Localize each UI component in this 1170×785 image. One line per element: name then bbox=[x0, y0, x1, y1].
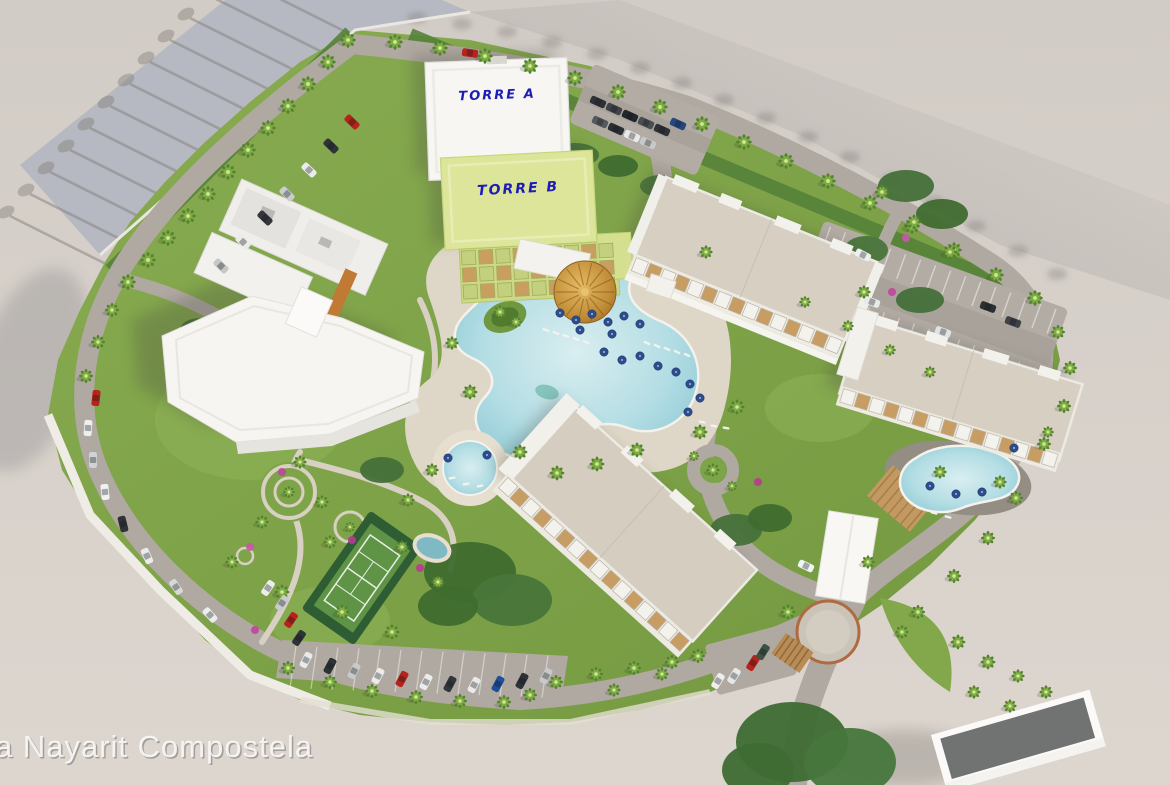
palm-tree-icon bbox=[550, 466, 565, 481]
palm-tree-icon bbox=[385, 625, 400, 640]
palm-tree-icon bbox=[1042, 426, 1054, 438]
palm-tree-icon bbox=[323, 675, 337, 689]
terrace-cell bbox=[480, 283, 495, 298]
palm-frond-shadow bbox=[587, 48, 607, 60]
umbrella-top bbox=[486, 454, 488, 456]
bougainvillea-bush bbox=[902, 234, 910, 242]
palm-tree-icon bbox=[323, 535, 337, 549]
palm-tree-icon bbox=[1037, 437, 1051, 451]
palm-tree-icon bbox=[140, 252, 156, 268]
palm-tree-icon bbox=[255, 515, 269, 529]
palm-tree-icon bbox=[981, 531, 995, 545]
tree-cluster bbox=[598, 155, 638, 177]
tree-cluster bbox=[418, 586, 478, 626]
umbrella-top bbox=[687, 411, 689, 413]
palm-tree-icon bbox=[220, 164, 236, 180]
palm-tree-icon bbox=[365, 684, 379, 698]
terrace-cell bbox=[599, 243, 614, 258]
palm-tree-icon bbox=[895, 625, 909, 639]
umbrella-top bbox=[575, 319, 577, 321]
car-cabin bbox=[467, 49, 474, 56]
terrace-cell bbox=[497, 283, 512, 298]
site-plan-canvas: TORRE A TORRE B bbox=[0, 0, 1170, 785]
palm-tree-icon bbox=[993, 475, 1007, 489]
terrace-cell bbox=[497, 266, 512, 281]
palm-tree-icon bbox=[283, 486, 295, 498]
palm-frond-shadow bbox=[798, 131, 818, 143]
palm-tree-icon bbox=[293, 455, 307, 469]
palm-frond-shadow bbox=[542, 36, 562, 48]
palm-frond-shadow bbox=[452, 18, 472, 30]
palm-tree-icon bbox=[781, 605, 796, 620]
bougainvillea-bush bbox=[251, 626, 259, 634]
umbrella-top bbox=[591, 313, 593, 315]
palm-tree-icon bbox=[911, 605, 925, 619]
umbrella-top bbox=[639, 323, 641, 325]
palm-tree-icon bbox=[387, 34, 403, 50]
palm-tree-icon bbox=[315, 495, 329, 509]
palm-tree-icon bbox=[981, 655, 996, 670]
palm-tree-icon bbox=[799, 296, 811, 308]
palm-tree-icon bbox=[820, 173, 836, 189]
palm-tree-icon bbox=[842, 320, 854, 332]
terrace-cell bbox=[463, 284, 478, 299]
umbrella-top bbox=[559, 312, 561, 314]
palm-frond-shadow bbox=[1008, 245, 1028, 257]
palm-frond-shadow bbox=[840, 151, 860, 163]
palm-tree-icon bbox=[409, 690, 423, 704]
palm-tree-icon bbox=[432, 40, 448, 56]
car bbox=[89, 452, 97, 468]
palm-tree-icon bbox=[691, 649, 705, 663]
palm-tree-icon bbox=[567, 70, 583, 86]
palm-frond-shadow bbox=[756, 112, 776, 124]
umbrella-top bbox=[579, 329, 581, 331]
palm-tree-icon bbox=[699, 245, 713, 259]
palm-tree-icon bbox=[884, 344, 896, 356]
palm-tree-icon bbox=[1009, 491, 1023, 505]
palm-tree-icon bbox=[225, 555, 239, 569]
umbrella-top bbox=[699, 397, 701, 399]
palm-tree-icon bbox=[933, 465, 947, 479]
palm-tree-icon bbox=[943, 245, 958, 260]
palm-tree-icon bbox=[694, 116, 710, 132]
palm-tree-icon bbox=[522, 58, 538, 74]
bougainvillea-bush bbox=[888, 288, 896, 296]
terrace-cell bbox=[496, 249, 511, 264]
palm-frond-shadow bbox=[714, 94, 734, 106]
palm-tree-icon bbox=[875, 185, 890, 200]
palm-tree-icon bbox=[180, 208, 196, 224]
car bbox=[100, 484, 110, 501]
palm-tree-icon bbox=[861, 555, 875, 569]
palm-tree-icon bbox=[778, 153, 794, 169]
palm-tree-icon bbox=[340, 32, 356, 48]
palm-frond-shadow bbox=[966, 220, 986, 232]
palm-tree-icon bbox=[947, 569, 961, 583]
car bbox=[91, 390, 101, 407]
palm-tree-icon bbox=[924, 366, 936, 378]
palm-tree-icon bbox=[335, 605, 350, 620]
terrace-cell bbox=[462, 267, 477, 282]
bougainvillea-bush bbox=[348, 536, 356, 544]
terrace-cell bbox=[478, 249, 493, 264]
palm-tree-icon bbox=[91, 335, 105, 349]
umbrella-top bbox=[675, 371, 677, 373]
car bbox=[83, 420, 92, 437]
terrace-cell bbox=[479, 266, 494, 281]
palm-tree-icon bbox=[463, 385, 478, 400]
palm-tree-icon bbox=[260, 120, 276, 136]
palm-frond-shadow bbox=[1047, 268, 1067, 280]
umbrella-top bbox=[1013, 447, 1015, 449]
palm-tree-icon bbox=[105, 303, 119, 317]
umbrella-top bbox=[639, 355, 641, 357]
palm-tree-icon bbox=[79, 369, 93, 383]
palm-tree-icon bbox=[607, 683, 621, 697]
palm-tree-icon bbox=[445, 336, 459, 350]
palm-tree-icon bbox=[967, 685, 981, 699]
umbrella-top bbox=[611, 333, 613, 335]
palm-tree-icon bbox=[431, 575, 445, 589]
palm-tree-icon bbox=[240, 142, 256, 158]
palm-tree-icon bbox=[727, 481, 738, 492]
terrace-cell bbox=[461, 250, 476, 265]
palm-tree-icon bbox=[706, 463, 720, 477]
palm-tree-icon bbox=[523, 688, 537, 702]
palm-tree-icon bbox=[665, 655, 679, 669]
palm-tree-icon bbox=[200, 186, 216, 202]
palm-tree-icon bbox=[345, 522, 356, 533]
torre-a-label: TORRE A bbox=[458, 87, 536, 105]
umbrella-top bbox=[657, 365, 659, 367]
palm-tree-icon bbox=[320, 54, 336, 70]
tree-cluster bbox=[916, 199, 968, 229]
umbrella-top bbox=[603, 351, 605, 353]
palm-tree-icon bbox=[549, 675, 563, 689]
palm-tree-icon bbox=[497, 695, 511, 709]
terrace-cell bbox=[532, 281, 547, 296]
palm-tree-icon bbox=[988, 267, 1004, 283]
car-cabin bbox=[93, 395, 100, 402]
palm-tree-icon bbox=[627, 661, 641, 675]
palm-tree-icon bbox=[730, 400, 745, 415]
umbrella-top bbox=[981, 491, 983, 493]
palm-tree-icon bbox=[655, 667, 669, 681]
palm-tree-icon bbox=[1003, 699, 1017, 713]
palm-tree-icon bbox=[1057, 399, 1071, 413]
umbrella-top bbox=[955, 493, 957, 495]
car-cabin bbox=[90, 457, 96, 463]
tree-cluster bbox=[360, 457, 404, 483]
palm-frond-shadow bbox=[497, 26, 517, 38]
palm-tree-icon bbox=[1051, 325, 1065, 339]
palm-tree-icon bbox=[736, 134, 752, 150]
bougainvillea-bush bbox=[246, 543, 254, 551]
palm-tree-icon bbox=[425, 463, 439, 477]
palm-frond-shadow bbox=[672, 77, 692, 89]
palm-tree-icon bbox=[610, 84, 626, 100]
car-cabin bbox=[85, 425, 92, 431]
palm-tree-icon bbox=[590, 457, 605, 472]
palm-tree-icon bbox=[493, 305, 507, 319]
bougainvillea-bush bbox=[278, 468, 286, 476]
tree-cluster bbox=[896, 287, 944, 313]
umbrella-top bbox=[607, 321, 609, 323]
palm-tree-icon bbox=[1027, 290, 1043, 306]
palm-tree-icon bbox=[453, 694, 467, 708]
umbrella-top bbox=[621, 359, 623, 361]
umbrella-top bbox=[623, 315, 625, 317]
watermark-text: a Nayarit Compostela bbox=[0, 729, 313, 764]
palm-tree-icon bbox=[693, 425, 708, 440]
palm-tree-icon bbox=[477, 48, 493, 64]
tree-cluster bbox=[472, 574, 552, 626]
palm-tree-icon bbox=[401, 493, 415, 507]
palm-tree-icon bbox=[120, 274, 136, 290]
bougainvillea-bush bbox=[754, 478, 762, 486]
palm-tree-icon bbox=[951, 635, 966, 650]
terrace-cell bbox=[515, 282, 530, 297]
umbrella-top bbox=[447, 457, 449, 459]
tree-cluster bbox=[748, 504, 792, 532]
aerial-render: TORRE A TORRE B bbox=[0, 0, 1170, 785]
palm-tree-icon bbox=[652, 99, 668, 115]
palm-tree-icon bbox=[281, 661, 295, 675]
palm-tree-icon bbox=[1011, 669, 1025, 683]
bougainvillea-bush bbox=[416, 564, 424, 572]
palm-tree-icon bbox=[589, 667, 603, 681]
car-cabin bbox=[102, 489, 109, 496]
palm-tree-icon bbox=[160, 230, 176, 246]
palm-tree-icon bbox=[300, 76, 316, 92]
palm-tree-icon bbox=[510, 316, 522, 328]
umbrella-top bbox=[689, 383, 691, 385]
palm-tree-icon bbox=[395, 540, 409, 554]
palm-frond-shadow bbox=[630, 62, 650, 74]
palm-tree-icon bbox=[1063, 361, 1077, 375]
umbrella-top bbox=[929, 485, 931, 487]
palm-tree-icon bbox=[630, 443, 645, 458]
palm-tree-icon bbox=[280, 98, 296, 114]
palm-tree-icon bbox=[513, 445, 528, 460]
palm-tree-icon bbox=[907, 215, 922, 230]
palm-tree-icon bbox=[689, 451, 700, 462]
palm-tree-icon bbox=[1039, 685, 1053, 699]
